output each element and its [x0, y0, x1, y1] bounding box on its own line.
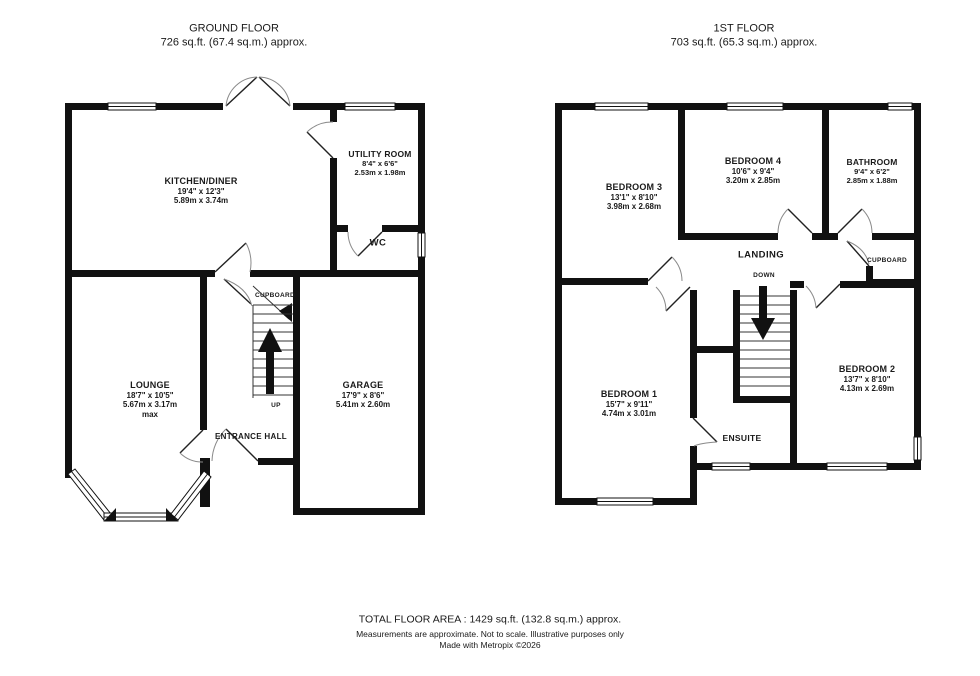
first-floor-title: 1ST FLOOR 703 sq.ft. (65.3 sq.m.) approx…: [671, 22, 818, 50]
room-label-bedroom-3: BEDROOM 3 13'1" x 8'10" 3.98m x 2.68m: [606, 182, 662, 212]
room-label-bedroom-1: BEDROOM 1 15'7" x 9'11" 4.74m x 3.01m: [601, 389, 657, 419]
ground-floor-windows: [108, 103, 425, 257]
floor-plan-canvas: [0, 0, 980, 676]
ground-floor-title-area: 726 sq.ft. (67.4 sq.m.) approx.: [161, 36, 308, 50]
room-label-utility-room: UTILITY ROOM 8'4" x 6'6" 2.53m x 1.98m: [348, 149, 411, 177]
room-label-bathroom: BATHROOM 9'4" x 6'2" 2.85m x 1.88m: [846, 157, 897, 185]
stairs-up-label: UP: [271, 402, 281, 410]
room-label-garage: GARAGE 17'9" x 8'6" 5.41m x 2.60m: [336, 380, 390, 410]
bay-window: [68, 469, 211, 521]
up-arrow: [266, 348, 274, 394]
total-floor-area: TOTAL FLOOR AREA : 1429 sq.ft. (132.8 sq…: [359, 614, 621, 627]
room-label-landing: LANDING: [738, 249, 784, 260]
room-label-cupboard-gf: CUPBOARD: [255, 292, 295, 300]
room-label-wc: WC: [370, 237, 387, 248]
ground-floor-title-name: GROUND FLOOR: [161, 22, 308, 36]
ground-floor-title: GROUND FLOOR 726 sq.ft. (67.4 sq.m.) app…: [161, 22, 308, 50]
down-arrow-head: [751, 318, 775, 340]
ground-floor-plan: [65, 77, 425, 521]
room-label-bedroom-4: BEDROOM 4 10'6" x 9'4" 3.20m x 2.85m: [725, 156, 781, 186]
stairs-down-label: DOWN: [753, 272, 775, 280]
room-label-entrance-hall: ENTRANCE HALL: [215, 432, 287, 442]
room-label-lounge: LOUNGE 18'7" x 10'5" 5.67m x 3.17m max: [123, 380, 177, 420]
floorplan-page: GROUND FLOOR 726 sq.ft. (67.4 sq.m.) app…: [0, 0, 980, 676]
first-floor-title-name: 1ST FLOOR: [671, 22, 818, 36]
room-label-cupboard-ff: CUPBOARD: [867, 257, 907, 265]
first-floor-title-area: 703 sq.ft. (65.3 sq.m.) approx.: [671, 36, 818, 50]
footer-disclaimer: Measurements are approximate. Not to sca…: [356, 629, 624, 639]
footer-credit: Made with Metropix ©2026: [439, 640, 540, 650]
room-label-bedroom-2: BEDROOM 2 13'7" x 8'10" 4.13m x 2.69m: [839, 364, 895, 394]
stairs-down: [740, 286, 790, 386]
stairs-up: [253, 305, 293, 398]
down-arrow: [759, 286, 767, 320]
room-label-kitchen-diner: KITCHEN/DINER 19'4" x 12'3" 5.89m x 3.74…: [164, 176, 237, 206]
room-label-ensuite: ENSUITE: [723, 433, 762, 443]
